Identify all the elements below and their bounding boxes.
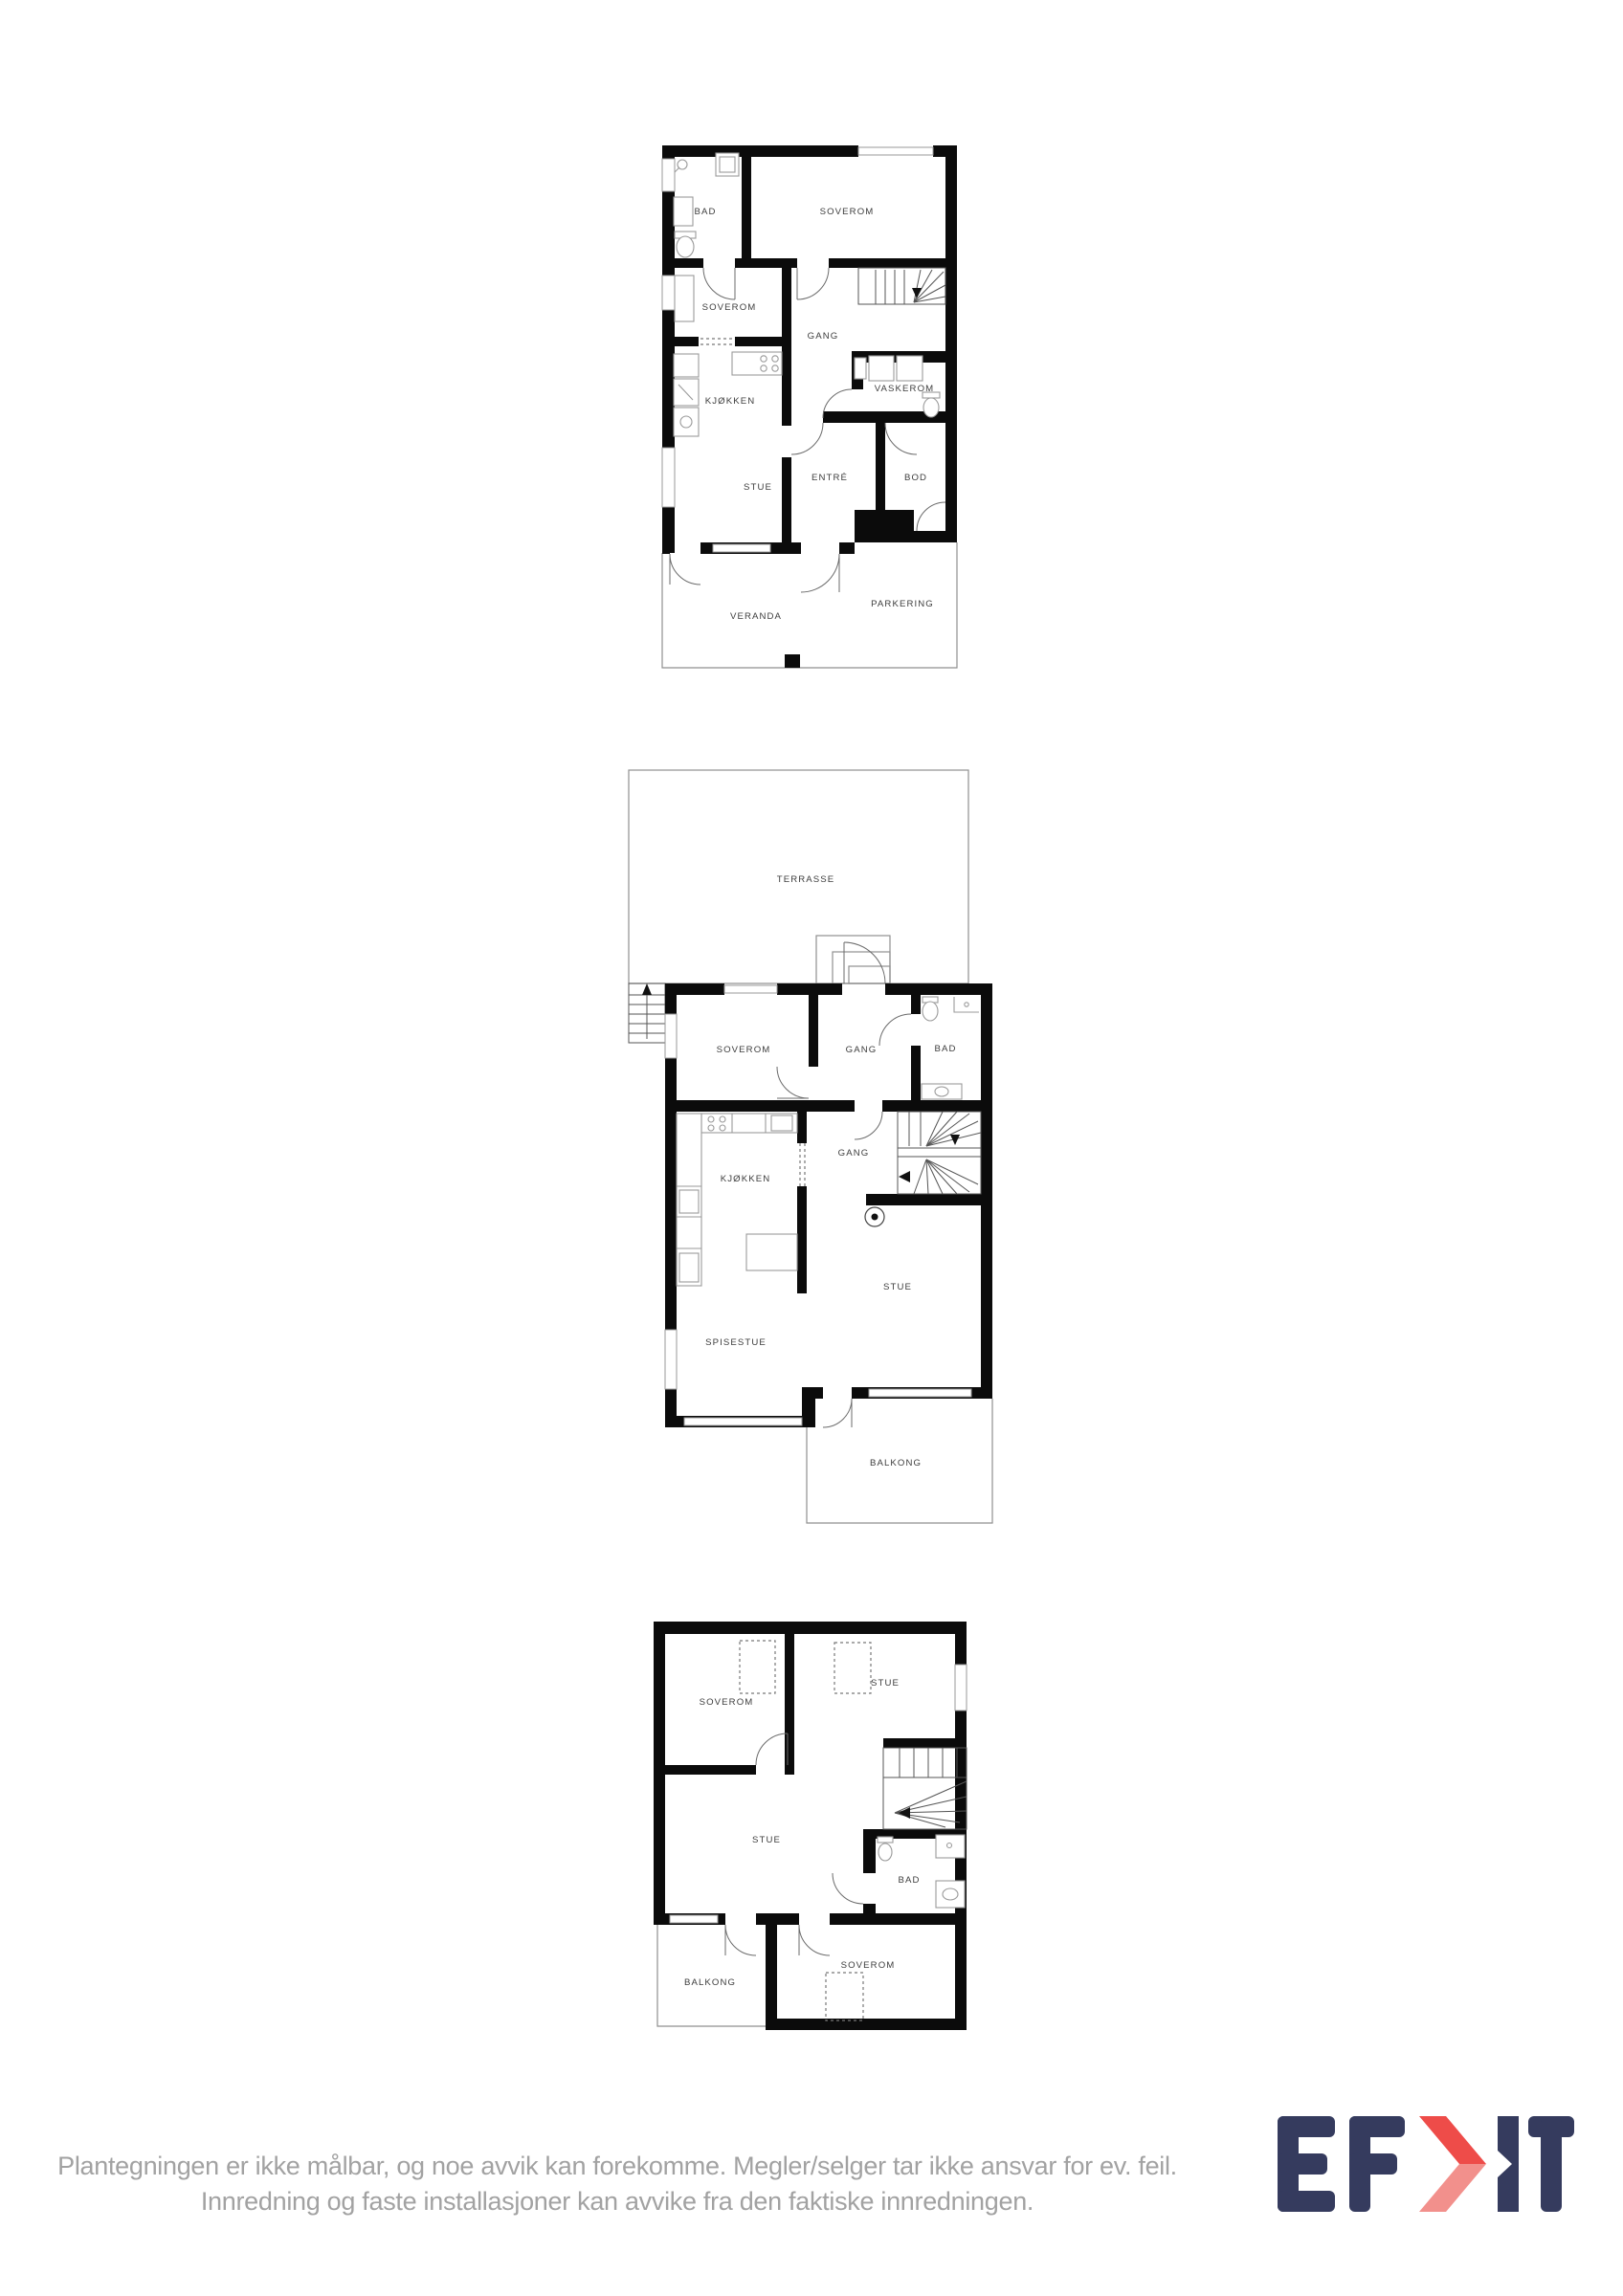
floor-plan-3-svg: SOVEROM STUE STUE BAD BALKONG SOVEROM [608, 1617, 976, 2038]
logo-navy-letters [1278, 2116, 1574, 2212]
room-label-soverom-bottom: SOVEROM [841, 1960, 896, 1971]
room-label-terrasse: TERRASSE [777, 874, 835, 885]
floor-plan-2-svg: TERRASSE SOVEROM GANG BAD KJØKKEN GANG S… [617, 761, 1000, 1535]
room-label-stue-top: STUE [871, 1678, 900, 1689]
door-arcs [777, 942, 911, 1427]
floor-plan-3: SOVEROM STUE STUE BAD BALKONG SOVEROM [608, 1617, 976, 2038]
room-label-balkong: BALKONG [684, 1977, 736, 1988]
fixtures [677, 997, 979, 1286]
logo-k-stem [1498, 2116, 1519, 2212]
floorplan-page: BAD SOVEROM SOVEROM GANG VASKEROM KJØKKE… [0, 0, 1623, 2296]
room-label-kjokken: KJØKKEN [721, 1174, 770, 1184]
room-label-gang-lower: GANG [838, 1148, 870, 1159]
room-label-bod: BOD [904, 473, 927, 483]
room-label-kjokken: KJØKKEN [705, 396, 755, 407]
dashed-opening [700, 339, 733, 344]
disclaimer-line-1: Plantegningen er ikke målbar, og noe avv… [0, 2149, 1234, 2184]
room-label-bad: BAD [898, 1875, 920, 1886]
room-label-bad: BAD [934, 1044, 956, 1054]
efkt-logo [1278, 2116, 1574, 2212]
stairs-icon [858, 268, 945, 304]
efkt-logo-svg [1278, 2116, 1574, 2212]
floor-plan-2: TERRASSE SOVEROM GANG BAD KJØKKEN GANG S… [617, 761, 1000, 1535]
room-label-soverom-top: SOVEROM [700, 1697, 754, 1708]
room-label-soverom-top: SOVEROM [820, 207, 875, 217]
room-label-gang-upper: GANG [846, 1045, 878, 1055]
walls [654, 1622, 967, 2030]
logo-chevron-bottom [1419, 2164, 1486, 2212]
stairs-icon [898, 1112, 981, 1194]
room-label-stue: STUE [752, 1835, 781, 1845]
room-label-veranda: VERANDA [730, 611, 782, 622]
balkong-outline [657, 1925, 766, 2026]
disclaimer-line-2: Innredning og faste installasjoner kan a… [0, 2184, 1234, 2219]
room-label-soverom-mid: SOVEROM [702, 302, 757, 313]
room-label-soverom: SOVEROM [717, 1045, 771, 1055]
room-label-entre: ENTRÉ [811, 473, 848, 483]
disclaimer-text: Plantegningen er ikke målbar, og noe avv… [0, 2149, 1234, 2219]
dashed-opening [800, 1143, 805, 1186]
room-label-stue: STUE [744, 482, 772, 493]
room-label-gang: GANG [808, 331, 839, 342]
room-label-bad: BAD [694, 207, 716, 217]
room-label-stue: STUE [883, 1282, 912, 1292]
stairs-icon [883, 1748, 967, 1829]
room-label-spisestue: SPISESTUE [705, 1337, 767, 1348]
exterior-stairs-icon [629, 983, 665, 1043]
room-label-parkering: PARKERING [871, 599, 934, 609]
floor-plan-1-svg: BAD SOVEROM SOVEROM GANG VASKEROM KJØKKE… [617, 134, 962, 670]
room-labels: TERRASSE SOVEROM GANG BAD KJØKKEN GANG S… [705, 874, 956, 1468]
logo-chevron-top [1419, 2116, 1486, 2164]
room-label-balkong: BALKONG [870, 1458, 922, 1468]
fixtures [878, 1835, 965, 1908]
floor-plan-1: BAD SOVEROM SOVEROM GANG VASKEROM KJØKKE… [617, 134, 962, 670]
room-label-vaskerom: VASKEROM [875, 384, 934, 394]
walls [662, 145, 957, 668]
wood-stove-icon [865, 1207, 884, 1226]
